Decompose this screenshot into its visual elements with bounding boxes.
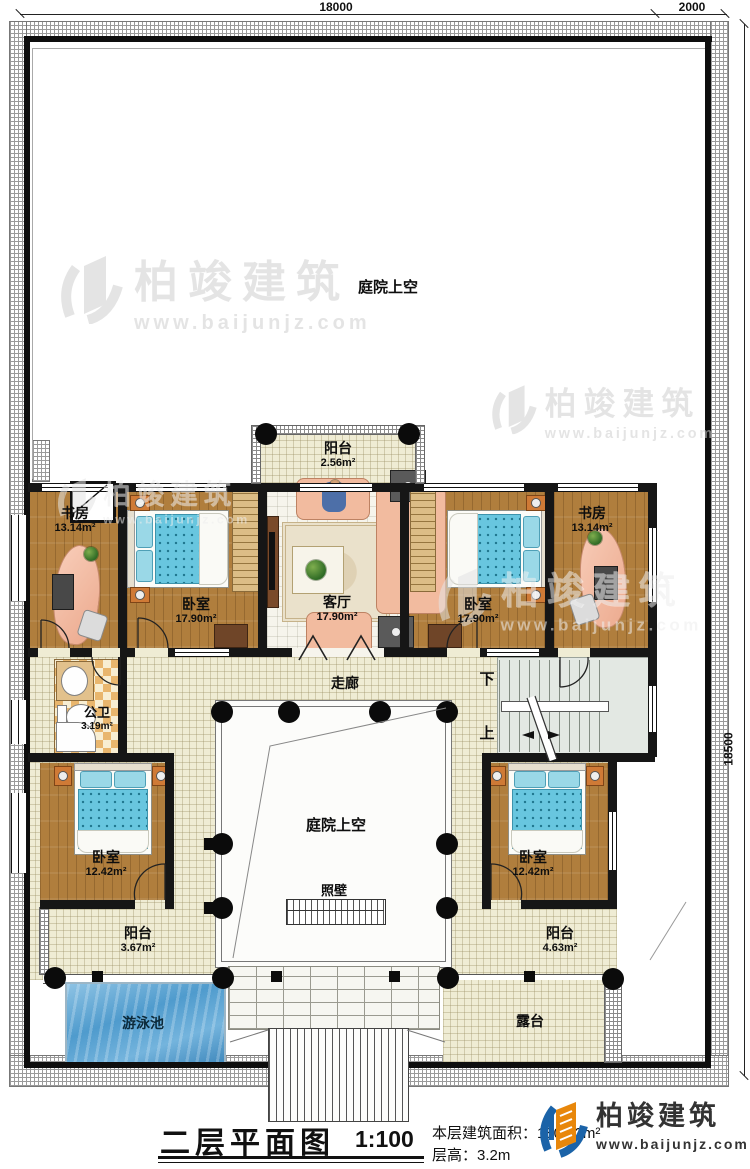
dim-top-right: 2000	[679, 0, 706, 14]
column	[369, 701, 391, 723]
lamp	[531, 498, 541, 508]
plant	[84, 547, 98, 561]
outer-wall-line-top	[24, 36, 712, 42]
label-stairs-up: 上	[479, 726, 494, 743]
tv-stand	[428, 624, 462, 648]
balcony-door	[300, 483, 372, 492]
room-label-balcony-br: 阳台4.63m²	[543, 926, 578, 954]
computer-monitor	[594, 566, 618, 600]
wall-v3	[400, 483, 409, 657]
window	[487, 648, 539, 657]
column	[211, 833, 233, 855]
terrace-side-wall	[605, 978, 621, 1062]
plan-scale: 1:100	[355, 1126, 414, 1153]
room-label-study-left: 书房13.14m²	[55, 506, 96, 534]
nightstand	[586, 766, 604, 786]
nightstand	[526, 495, 546, 511]
door-opening	[92, 648, 120, 657]
window	[648, 528, 657, 602]
lamp	[135, 498, 145, 508]
room-label-bedroom-left: 卧室17.90m²	[176, 597, 217, 625]
pillow	[80, 771, 112, 788]
headboard	[508, 763, 586, 771]
room-label-bath: 公卫3.19m²	[81, 706, 113, 732]
window	[11, 793, 27, 873]
floor-plan: 18000 2000 18500	[0, 0, 750, 1169]
column-post	[271, 971, 282, 982]
screen-wall-midline	[286, 910, 384, 911]
courtyard-inner-line	[32, 48, 706, 479]
pillow	[523, 516, 540, 548]
room-label-bedroom-br: 卧室12.42m²	[513, 850, 554, 878]
window	[608, 812, 617, 870]
dresser	[214, 624, 248, 648]
computer-monitor	[52, 574, 74, 610]
screen-wall	[286, 899, 386, 925]
headboard	[127, 510, 135, 588]
wall-v2	[258, 483, 267, 657]
dim-line-right	[744, 24, 745, 1076]
nightstand	[130, 495, 150, 511]
column	[211, 897, 233, 919]
pillow	[548, 771, 580, 788]
wall-v1	[118, 483, 127, 657]
wall-bedroom-bl-bottom	[40, 900, 135, 909]
room-label-bedroom-right: 卧室17.90m²	[458, 597, 499, 625]
column-tab	[204, 902, 214, 914]
outer-wall-right	[711, 22, 728, 1086]
nightstand	[54, 766, 72, 786]
wall-bath-bottom	[28, 753, 174, 762]
window	[136, 483, 226, 492]
window	[558, 483, 638, 492]
label-stairs-down: 下	[479, 672, 494, 689]
lamp	[58, 771, 68, 781]
duvet	[199, 513, 228, 585]
nightstand	[130, 587, 150, 603]
french-door-opening	[292, 648, 384, 657]
label-terrace: 露台	[516, 1014, 544, 1030]
company-logo-url: www.baijunjz.com	[596, 1136, 749, 1152]
column	[44, 967, 66, 989]
headboard	[74, 763, 152, 771]
floor-height-text: 层高：3.2m	[432, 1144, 510, 1165]
nightstand	[526, 587, 546, 603]
wardrobe	[410, 488, 436, 592]
door-opening	[135, 648, 168, 657]
column	[602, 968, 624, 990]
room-label-balcony-top: 阳台2.56m²	[321, 441, 356, 469]
column	[212, 967, 234, 989]
balcony-bl-rail	[40, 908, 48, 974]
column-post	[524, 971, 535, 982]
window	[11, 515, 27, 601]
column	[255, 423, 277, 445]
pillow	[523, 550, 540, 582]
dim-line-top	[20, 14, 727, 15]
dim-right-side: 18500	[722, 732, 736, 765]
door-opening	[38, 648, 70, 657]
window	[11, 700, 27, 744]
column	[436, 701, 458, 723]
label-corridor: 走廊	[331, 676, 359, 692]
outer-wall-line-right	[705, 36, 711, 1068]
label-courtyard-center: 庭院上空	[306, 818, 366, 835]
entry-steps	[268, 1028, 409, 1122]
wall-bedroom-br-bottom	[521, 900, 617, 909]
room-label-bedroom-bl: 卧室12.42m²	[86, 850, 127, 878]
door-opening	[558, 648, 590, 657]
label-pool: 游泳池	[122, 1016, 164, 1032]
room-label-living: 客厅17.90m²	[317, 595, 358, 623]
window	[648, 686, 657, 732]
company-logo-icon	[536, 1094, 588, 1160]
window	[424, 483, 524, 492]
wall-bath-right	[118, 657, 127, 757]
lamp	[135, 590, 145, 600]
label-screen-wall: 照壁	[321, 884, 347, 899]
pillow	[136, 550, 153, 582]
room-label-study-right: 书房13.14m²	[572, 506, 613, 534]
tv-screen	[269, 532, 275, 590]
door-opening	[447, 648, 480, 657]
column	[436, 897, 458, 919]
label-courtyard-top: 庭院上空	[358, 280, 418, 297]
window	[175, 648, 229, 657]
company-logo: 柏竣建筑 www.baijunjz.com	[536, 1094, 749, 1160]
window	[42, 483, 108, 492]
wardrobe	[232, 488, 260, 592]
dim-top-main: 18000	[319, 0, 352, 14]
sink	[61, 666, 88, 696]
stair-handrail	[501, 701, 609, 712]
wall-v4	[545, 483, 554, 657]
pillow	[136, 516, 153, 548]
pillow	[514, 771, 546, 788]
column	[278, 701, 300, 723]
table-plant	[306, 560, 326, 580]
column	[398, 423, 420, 445]
company-logo-brand: 柏竣建筑	[596, 1094, 749, 1133]
lamp	[531, 590, 541, 600]
column	[437, 967, 459, 989]
column-post	[389, 971, 400, 982]
title-underline-2	[158, 1162, 424, 1163]
lamp	[590, 771, 600, 781]
column-post	[92, 971, 103, 982]
title-underline	[158, 1156, 424, 1159]
wall-stair-bottom	[482, 753, 655, 762]
courtyard-paving	[228, 966, 440, 1030]
column	[211, 701, 233, 723]
column	[436, 833, 458, 855]
lamp	[492, 771, 502, 781]
wall-bedroom-bl-right	[165, 753, 174, 909]
duvet	[449, 513, 478, 585]
room-label-balcony-bl: 阳台3.67m²	[121, 926, 156, 954]
outside-right-patch	[617, 762, 648, 980]
wall-bedroom-br-left	[482, 753, 491, 909]
column-tab	[204, 838, 214, 850]
pillow	[114, 771, 146, 788]
